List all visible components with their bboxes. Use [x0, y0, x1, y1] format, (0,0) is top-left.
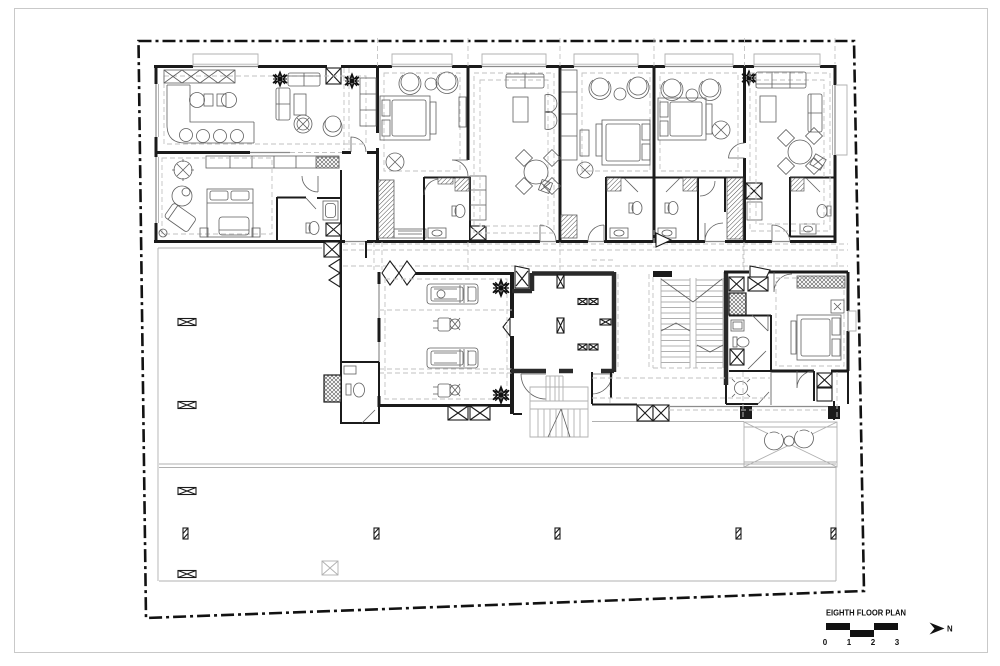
svg-text:N: N: [947, 625, 953, 634]
svg-text:1: 1: [847, 638, 852, 647]
svg-text:EIGHTH FLOOR PLAN: EIGHTH FLOOR PLAN: [826, 608, 906, 618]
svg-text:3: 3: [895, 638, 900, 647]
svg-text:0: 0: [823, 638, 828, 647]
svg-text:2: 2: [871, 638, 876, 647]
